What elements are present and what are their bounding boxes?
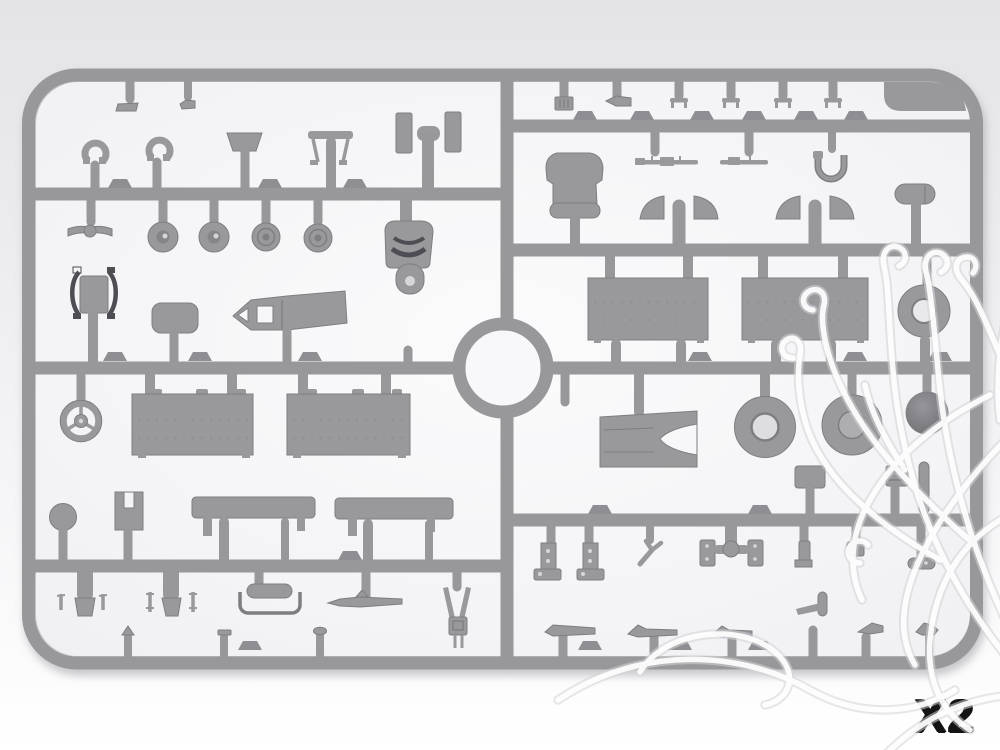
part-road-wheel-hollow [735,397,796,458]
part-wheel-hub-2 [199,222,229,252]
sprue-illustration [0,0,1000,750]
sprue-photo: X2 [0,0,1000,750]
part-wheel-rim-2 [304,224,332,252]
part-wheel-hub-1 [148,222,178,252]
part-wheel-rim-1 [252,223,280,251]
part-side-panel-2 [287,389,410,458]
part-side-panel-1 [132,389,253,458]
part-flat-shim [116,103,138,111]
center-ring [459,324,547,412]
part-bed-panel-1 [588,278,708,343]
part-grille-block [555,97,573,110]
part-steering-wheel [60,400,102,442]
